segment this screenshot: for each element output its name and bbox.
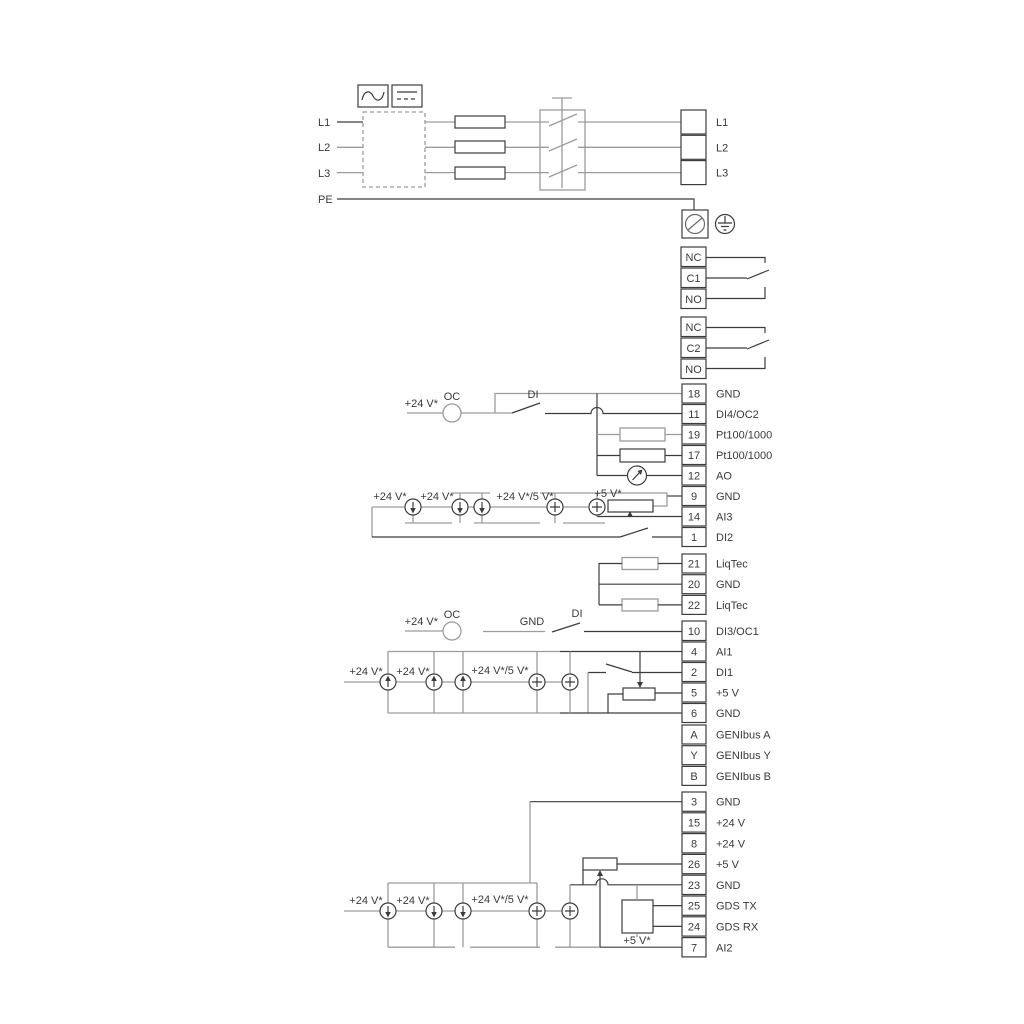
relay1-terminal-block: NCC1NO [681, 247, 706, 309]
terminal-number: 18 [688, 389, 700, 401]
terminal-label: GENIbus B [716, 771, 771, 783]
terminal-label: GND [716, 579, 741, 591]
terminal-label: GENIbus Y [716, 750, 771, 762]
terminal-number: NC [686, 252, 702, 264]
terminal-number: 22 [688, 600, 700, 612]
supply-option-arrow-icon [405, 499, 421, 523]
terminal-label: DI3/OC1 [716, 626, 759, 638]
annotations: L1 L2 L3 PE +24 V* OC DI +24 V* +24 V* +… [318, 117, 651, 947]
mains-terminal-block-cell-L1 [681, 110, 706, 134]
potentiometer-ai3 [608, 500, 653, 517]
fuse-l1 [455, 116, 505, 128]
supply-option-arrow-icon [452, 493, 468, 523]
gds-sensor-box [622, 885, 682, 937]
supply-option-plus-icon [529, 652, 545, 714]
ai2-options [380, 883, 578, 947]
terminal-label: GND [716, 797, 741, 809]
terminal-number: C1 [686, 273, 700, 285]
open-collector-circle-top [443, 404, 461, 422]
terminal-number: NO [685, 364, 702, 376]
gds-5v-label: +5 V* [623, 935, 651, 947]
terminal-number: 4 [691, 647, 697, 659]
terminal-number: 20 [688, 579, 700, 591]
terminal-number: 26 [688, 859, 700, 871]
terminal-label: AO [716, 471, 732, 483]
terminal-label: +5 V [716, 859, 740, 871]
terminal-label: AI3 [716, 512, 733, 524]
terminal-label: +24 V [716, 817, 746, 829]
terminal-label: GND [716, 880, 741, 892]
ai3-supply3-label: +24 V*/5 V* [496, 491, 554, 503]
oc-top-supply-label: +24 V* [405, 398, 439, 410]
fuse-l3 [455, 167, 505, 179]
terminal-label: GND [716, 389, 741, 401]
terminal-label: L3 [716, 168, 728, 180]
ai3-supply1-label: +24 V* [373, 491, 407, 503]
ai1-supply1-label: +24 V* [349, 666, 383, 678]
pt100-resistor-1 [597, 428, 682, 441]
terminal-number: 15 [688, 817, 700, 829]
terminal-number: A [690, 730, 698, 742]
terminal-label: AI1 [716, 647, 733, 659]
supply-option-arrow-icon [455, 652, 471, 714]
pe-screw-terminal-icon [682, 210, 708, 238]
terminal-number: 24 [688, 921, 700, 933]
supply-option-plus-icon [562, 885, 578, 947]
mains-terminal-block-cell-L3 [681, 161, 706, 185]
terminal-label: GDS TX [716, 901, 757, 913]
liqtec-wiring [599, 558, 682, 612]
ac-symbol-icon [358, 85, 388, 107]
terminal-number: 23 [688, 880, 700, 892]
ai2-supply2-label: +24 V* [396, 895, 430, 907]
analog-output-meter-icon [597, 466, 682, 485]
ai3-supply2-label: +24 V* [420, 491, 454, 503]
phase-label-l3: L3 [318, 168, 330, 180]
terminal-number: 8 [691, 838, 697, 850]
terminal-label: GDS RX [716, 921, 759, 933]
supply-option-arrow-icon [426, 883, 442, 947]
terminal-label: DI4/OC2 [716, 409, 759, 421]
di1-switch [588, 664, 682, 673]
relay2-terminal-block: NCC2NO [681, 317, 706, 379]
terminal-number: 14 [688, 512, 700, 524]
main-switch [540, 98, 585, 190]
phase-label-l2: L2 [318, 142, 330, 154]
terminal-number: 6 [691, 708, 697, 720]
io-terminal-strip-2: 4AI12DI15+5 V6GND [682, 642, 741, 723]
terminal-number: 3 [691, 797, 697, 809]
mains-terminal-block: L1L2L3 [681, 110, 728, 185]
terminal-label: DI1 [716, 667, 733, 679]
terminal-label: L2 [716, 142, 728, 154]
terminal-number: 7 [691, 942, 697, 954]
terminal-number: 5 [691, 688, 697, 700]
liqtec-resistor-2 [599, 599, 682, 611]
terminal-number: B [690, 771, 697, 783]
terminal-number: 9 [691, 491, 697, 503]
terminal-label: +5 V [716, 688, 740, 700]
terminal-number: 1 [691, 532, 697, 544]
terminal-label: GND [716, 491, 741, 503]
di3-terminal: 10DI3/OC1 [682, 621, 759, 641]
ai3-supply4-label: +5 V* [594, 488, 622, 500]
open-collector-circle-bottom [443, 622, 461, 640]
oc-bot-supply-label: +24 V* [405, 616, 439, 628]
relay1-contact [706, 258, 769, 299]
relay2-contact [706, 328, 769, 369]
ai1-supply2-label: +24 V* [396, 666, 430, 678]
terminal-number: NC [686, 322, 702, 334]
supply-option-plus-icon [562, 652, 578, 714]
mains-terminal-block-cell-L2 [681, 135, 706, 159]
terminal-label: GENIbus A [716, 730, 771, 742]
fuse-l2 [455, 141, 505, 153]
oc-bot-gnd-label: GND [520, 616, 545, 628]
ai2-supply1-label: +24 V* [349, 895, 383, 907]
phase-label-l1: L1 [318, 117, 330, 129]
earth-ground-icon [716, 215, 735, 234]
supply-option-arrow-icon [455, 883, 471, 947]
supply-option-arrow-icon [380, 883, 396, 947]
di4-switch [495, 403, 540, 413]
supply-option-plus-icon [529, 883, 545, 947]
terminal-label: LiqTec [716, 559, 748, 571]
terminal-number: 17 [688, 450, 700, 462]
terminal-label: Pt100/1000 [716, 450, 772, 462]
dc-symbol-icon [392, 85, 422, 107]
terminal-number: 19 [688, 430, 700, 442]
oc-top-oc-label: OC [444, 391, 461, 403]
phase-label-pe: PE [318, 194, 333, 206]
terminal-number: 2 [691, 667, 697, 679]
terminal-number: NO [685, 294, 702, 306]
terminal-label: +24 V [716, 838, 746, 850]
terminal-number: Y [690, 750, 698, 762]
oc-bot-oc-label: OC [444, 609, 461, 621]
terminal-label: L1 [716, 117, 728, 129]
terminal-label: DI2 [716, 532, 733, 544]
liqtec-terminal-strip: 21LiqTec20GND22LiqTec [682, 554, 748, 614]
emc-filter-box [363, 112, 425, 187]
io3-wiring [344, 802, 682, 948]
oc-top-di-label: DI [528, 389, 539, 401]
genibus-terminal-strip: AGENIbus AYGENIbus YBGENIbus B [682, 725, 771, 785]
mains-wiring [337, 122, 694, 211]
supply-option-arrow-icon [426, 652, 442, 714]
terminal-number: 11 [688, 409, 699, 421]
terminal-label: AI2 [716, 942, 733, 954]
ai1-supply3-label: +24 V*/5 V* [471, 665, 529, 677]
pt100-resistor-2 [597, 449, 682, 462]
io-terminal-strip-3: 3GND15+24 V8+24 V26+5 V23GND25GDS TX24GD… [682, 792, 759, 957]
di2-switch [372, 528, 682, 537]
terminal-label: LiqTec [716, 600, 748, 612]
terminal-number: 12 [688, 471, 700, 483]
terminal-label: Pt100/1000 [716, 430, 772, 442]
terminal-number: 21 [688, 559, 700, 571]
wiring-diagram-page: L1L2L3NCC1NONCC2NO18GND11DI4/OC219Pt100/… [0, 0, 1024, 1024]
terminal-number: 25 [688, 901, 700, 913]
wiring-diagram: L1L2L3NCC1NONCC2NO18GND11DI4/OC219Pt100/… [0, 0, 1024, 1024]
terminal-label: GND [716, 708, 741, 720]
io-terminal-strip-1: 18GND11DI4/OC219Pt100/100017Pt100/100012… [682, 384, 772, 547]
di3-switch [552, 623, 682, 632]
supply-option-arrow-icon [380, 652, 396, 714]
io1-wiring [372, 394, 682, 538]
supply-option-arrow-icon [474, 493, 490, 523]
potentiometer-ai1 [608, 652, 682, 714]
oc-bot-di-label: DI [572, 608, 583, 620]
ai2-supply3-label: +24 V*/5 V* [471, 894, 529, 906]
terminal-number: 10 [688, 626, 700, 638]
terminal-number: C2 [686, 343, 700, 355]
liqtec-resistor-1 [599, 558, 682, 605]
